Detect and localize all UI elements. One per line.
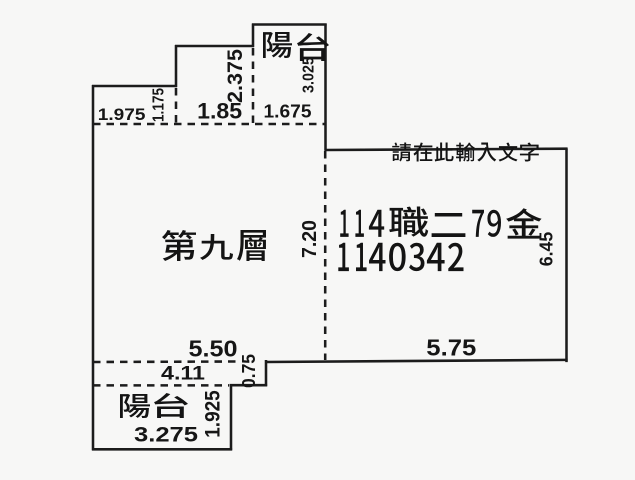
svg-text:0.75: 0.75 [239, 354, 259, 388]
svg-text:5.75: 5.75 [426, 335, 476, 361]
svg-text:1.675: 1.675 [264, 102, 312, 122]
svg-text:5.50: 5.50 [189, 335, 238, 361]
svg-text:1.175: 1.175 [150, 88, 167, 122]
svg-text:7.20: 7.20 [299, 220, 321, 258]
svg-text:2.375: 2.375 [224, 49, 247, 103]
svg-text:1.925: 1.925 [202, 390, 225, 438]
svg-text:6.45: 6.45 [536, 232, 557, 267]
svg-text:1.975: 1.975 [98, 105, 146, 124]
svg-text:4.11: 4.11 [161, 363, 206, 384]
svg-text:3.025: 3.025 [300, 57, 317, 93]
svg-text:3.275: 3.275 [134, 424, 198, 447]
